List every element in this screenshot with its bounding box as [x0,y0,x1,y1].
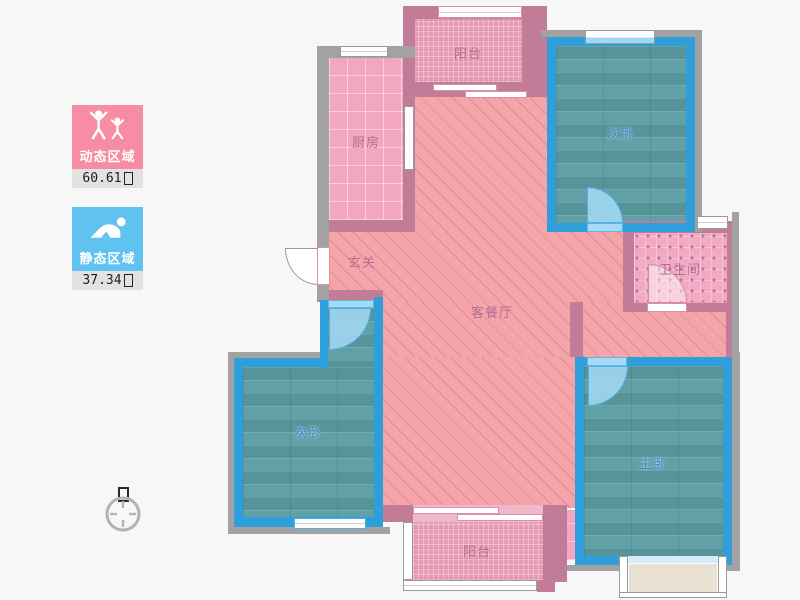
outer-wall [695,30,702,232]
people-exercise-icon [85,109,131,141]
wall [537,580,555,592]
room-kitchen-floor[interactable] [329,58,403,220]
bedroom-wall [234,358,243,527]
floorplan-screen: 动态区域 60.61 静态区域 37.34 [0,0,800,600]
outer-wall [732,352,740,571]
room-balcony-bottom-floor[interactable] [413,522,543,580]
sliding-door-panel[interactable] [433,84,497,91]
dynamic-area-card[interactable]: 动态区域 [72,105,143,169]
room-living-floor[interactable] [383,302,570,357]
sliding-door-panel[interactable] [413,507,499,514]
outer-wall [727,565,740,571]
window [294,518,366,529]
wall [623,221,634,312]
door-leaf[interactable] [647,303,687,312]
room-living-floor[interactable] [415,97,547,232]
bay-window-sill [628,563,718,594]
bedroom-wall [547,37,695,232]
window [340,46,388,57]
room-bedroom-bottom-left-floor[interactable] [243,367,374,517]
window [697,216,728,229]
door-leaf[interactable] [587,357,627,366]
sliding-door-panel[interactable] [457,514,543,521]
static-area-value: 37.34 [72,271,143,290]
room-balcony-top-floor[interactable] [413,19,522,82]
dynamic-area-label: 动态区域 [79,146,135,165]
sliding-door-panel[interactable] [465,91,527,98]
window [585,30,655,44]
static-area-card[interactable]: 静态区域 [72,207,143,271]
sqm-missing-glyph-box [124,172,133,185]
dynamic-area-value: 60.61 [72,169,143,188]
window [438,6,522,18]
outer-wall [567,565,620,571]
wall [543,505,567,582]
door-leaf[interactable] [587,223,623,232]
sqm-missing-glyph-box [124,274,133,287]
static-area-label: 静态区域 [79,248,135,267]
entrance-door-swing-arc [285,248,318,285]
room-living-floor[interactable] [383,357,575,508]
wall [317,220,415,232]
bedroom-wall [374,297,383,527]
door-leaf[interactable] [328,300,374,308]
wall [383,505,413,522]
window [403,580,537,591]
outer-wall [732,212,739,358]
bay-window-post [718,556,727,596]
crawling-baby-icon [85,213,131,243]
bedroom-wall [234,358,327,367]
compass-north-indicator [88,468,158,538]
bay-window-frame [619,592,727,598]
bay-window-post [619,556,628,596]
kitchen-door-leaf[interactable] [404,106,414,170]
entrance-door-leaf[interactable] [317,247,330,285]
balcony-glass-wall [403,522,413,580]
wall [570,302,583,357]
